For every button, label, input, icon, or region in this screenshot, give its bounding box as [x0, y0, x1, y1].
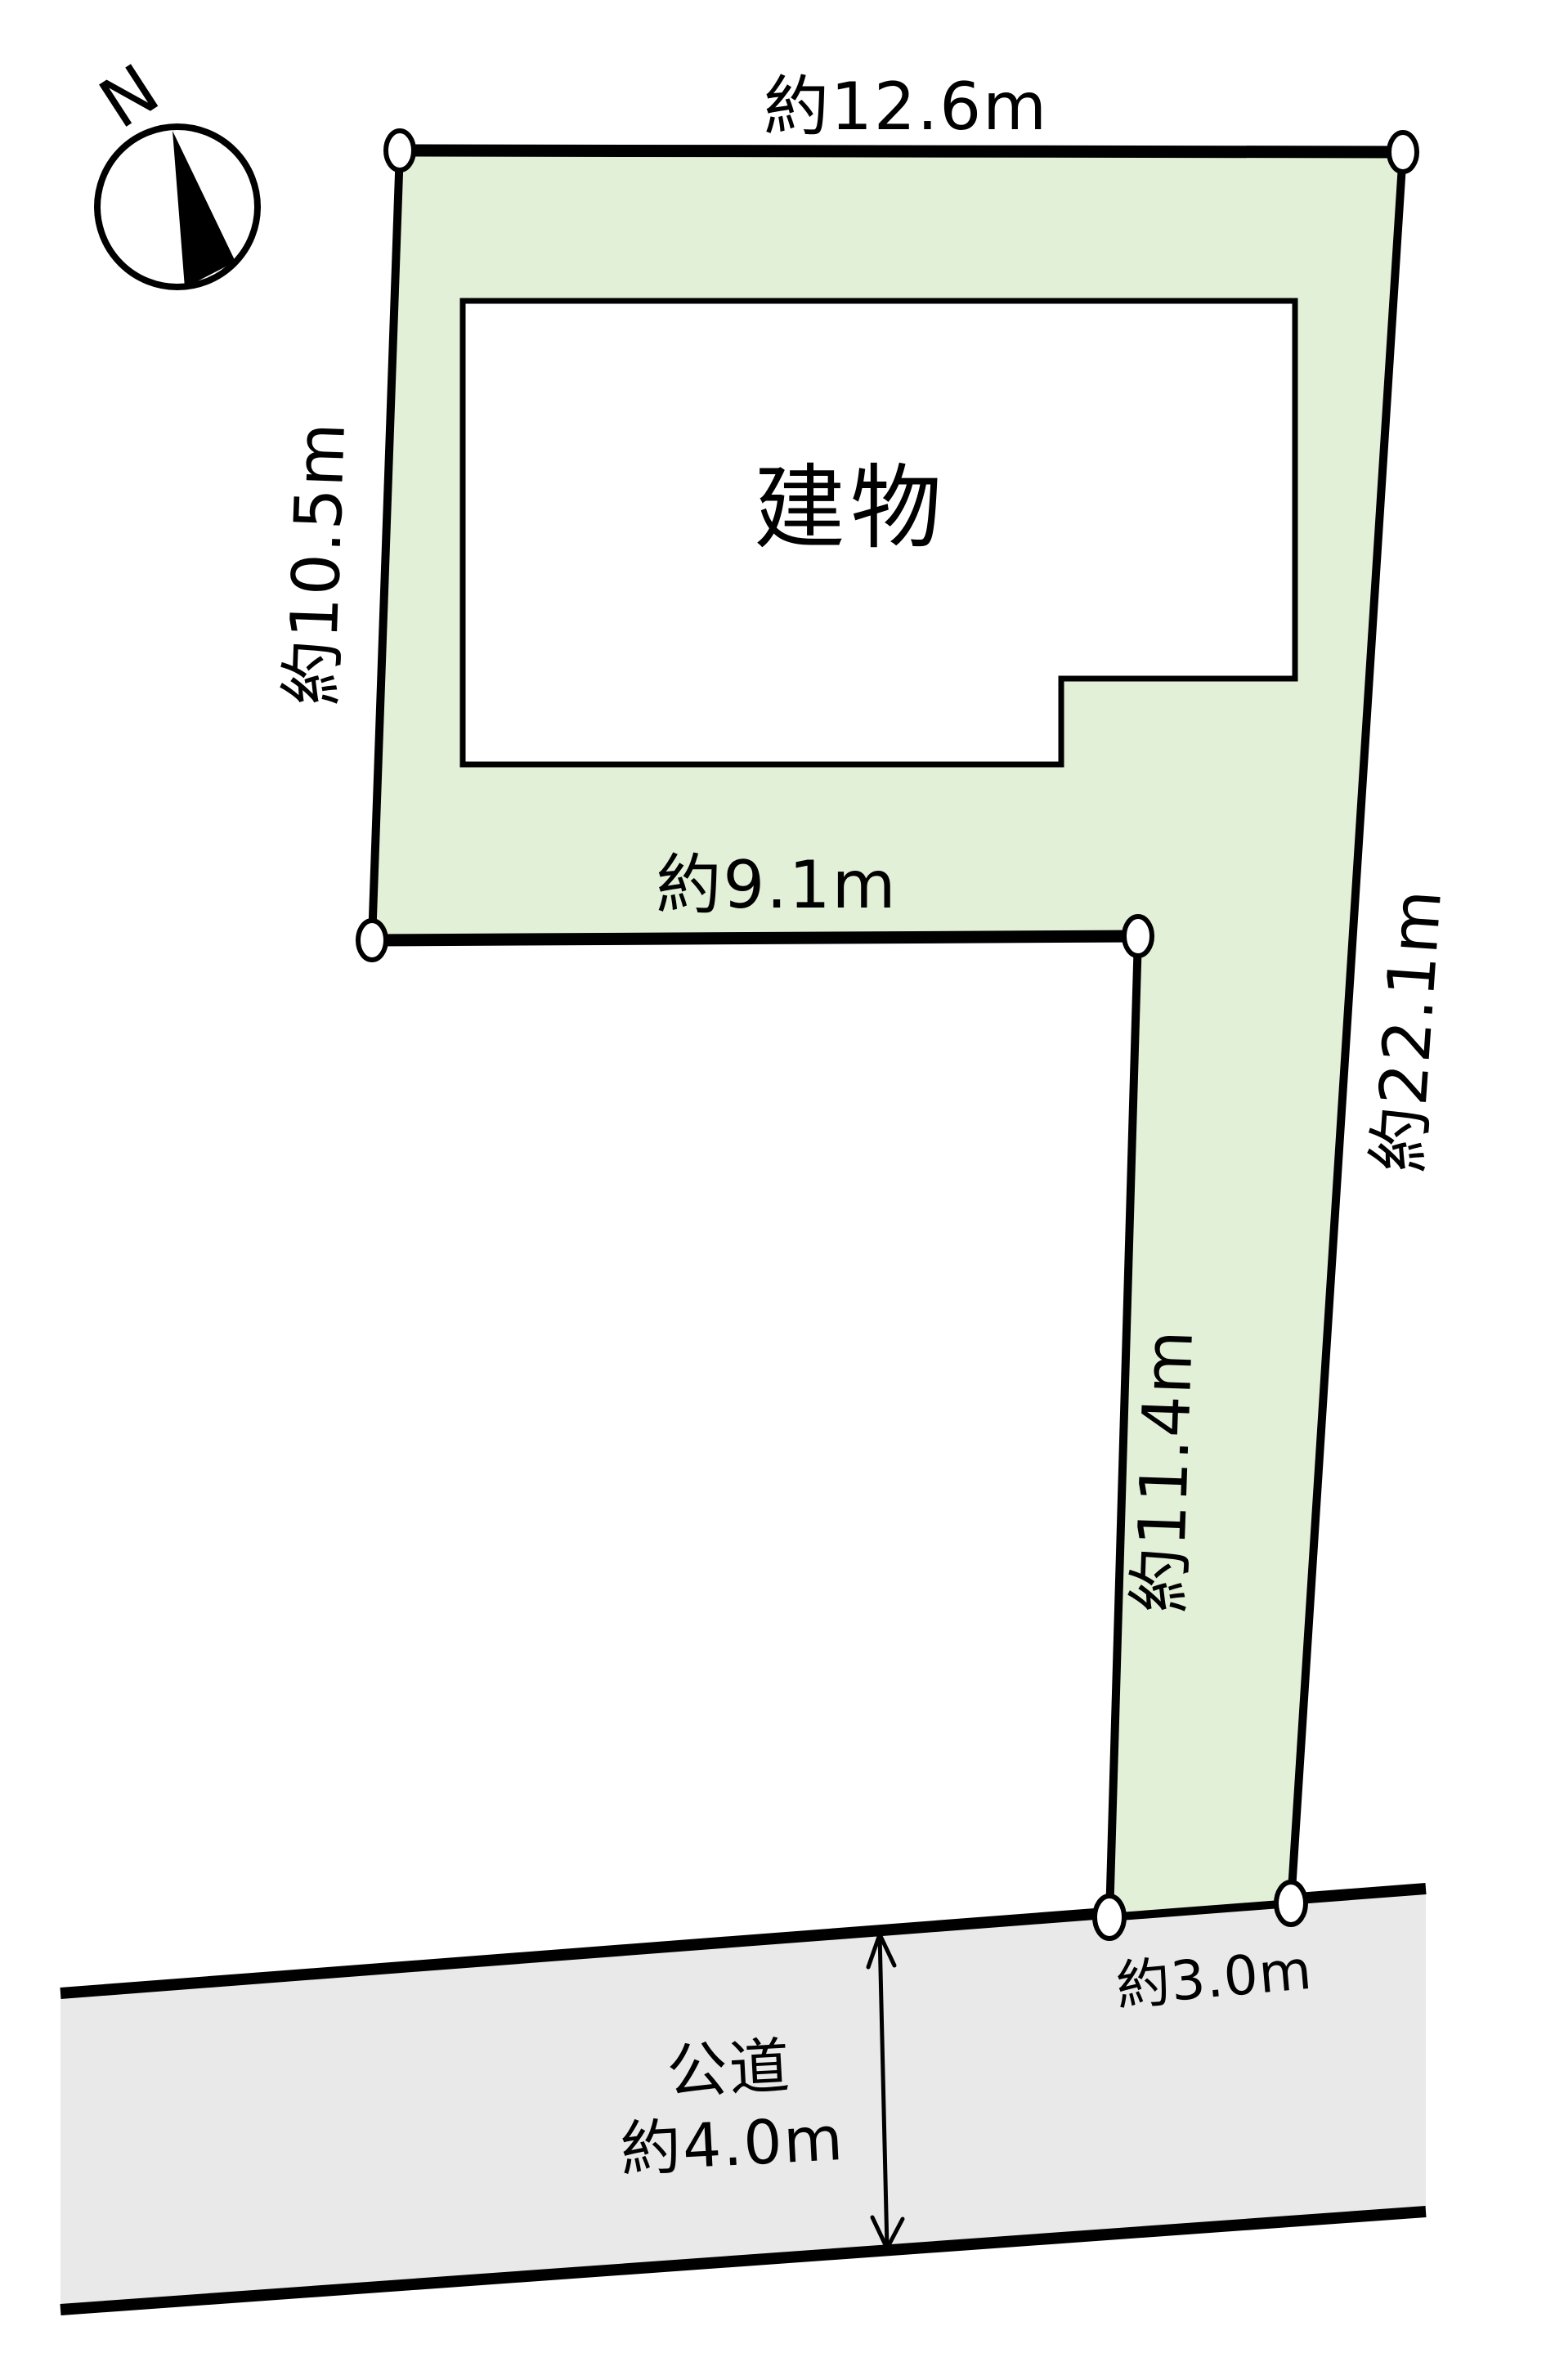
dimension-inner-bottom-edge: 約9.1m — [656, 847, 897, 923]
lot-top-edge-line — [400, 150, 1403, 152]
road-type-label: 公道 — [665, 2031, 793, 2108]
compass: N — [86, 49, 258, 288]
dimension-flag-left-edge: 約11.4m — [1122, 1327, 1208, 1614]
building-label: 建物 — [754, 455, 947, 562]
compass-needle-icon — [173, 131, 235, 288]
site-plan-diagram: 建物 約12.6m 約10.5m 約9.1m 約22.1m 約11.4m 約3.… — [0, 0, 1555, 2380]
vertex-marker-bottom-left — [1095, 1896, 1124, 1939]
dimension-left-edge: 約10.5m — [274, 419, 360, 706]
vertex-marker-top-right — [1389, 132, 1417, 172]
vertex-marker-top-left — [386, 131, 414, 170]
lot-inner-bottom-edge-line — [372, 936, 1138, 940]
dimension-top-edge: 約12.6m — [764, 69, 1048, 145]
vertex-marker-bottom-right — [1276, 1882, 1306, 1925]
site-plan-svg: 建物 約12.6m 約10.5m 約9.1m 約22.1m 約11.4m 約3.… — [0, 0, 1555, 2380]
dimension-right-edge: 約22.1m — [1360, 885, 1456, 1175]
vertex-marker-mid-left — [358, 921, 386, 960]
vertex-marker-mid-right — [1124, 917, 1152, 956]
road-width-label: 約4.0m — [619, 2104, 846, 2185]
